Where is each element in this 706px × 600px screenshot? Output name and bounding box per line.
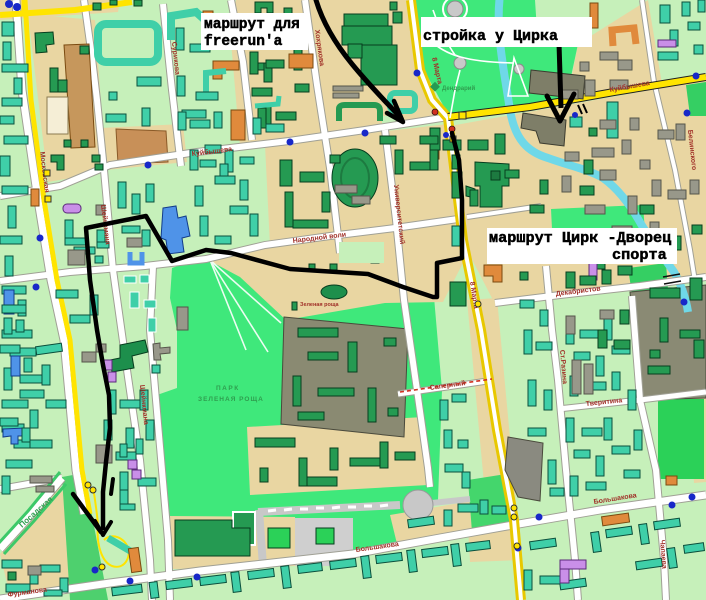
svg-text:маршрут Цирк -Дворец: маршрут Цирк -Дворец	[489, 229, 671, 247]
svg-text:спорта: спорта	[612, 246, 667, 264]
svg-text:стройка у Цирка: стройка у Цирка	[423, 28, 558, 45]
svg-text:маршрут для: маршрут для	[204, 17, 300, 33]
svg-text:Дендрарий: Дендрарий	[442, 85, 475, 92]
svg-text:ПАРК: ПАРК	[216, 385, 240, 392]
svg-text:freerun'a: freerun'a	[204, 34, 283, 50]
svg-text:Зеленая роща: Зеленая роща	[300, 302, 340, 308]
svg-text:ЗЕЛЕНАЯ РОЩА: ЗЕЛЕНАЯ РОЩА	[198, 396, 264, 403]
